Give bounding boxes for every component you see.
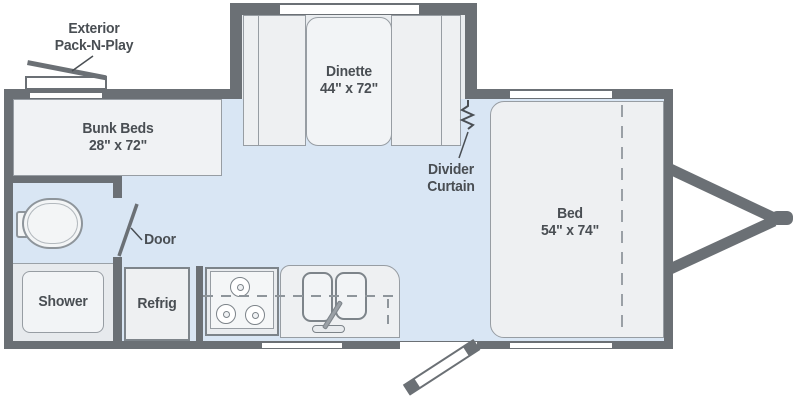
label-shower-text: Shower xyxy=(38,293,87,310)
label-bunk-beds: Bunk Beds 28" x 72" xyxy=(82,120,153,154)
label-divider-curtain-line1: Divider xyxy=(427,161,475,178)
packnplay-pointer xyxy=(72,56,93,71)
label-dinette-name: Dinette xyxy=(320,63,378,80)
label-divider-curtain: Divider Curtain xyxy=(427,161,475,195)
label-bed-name: Bed xyxy=(541,205,599,222)
hitch-coupler xyxy=(771,211,793,225)
label-refrig-text: Refrig xyxy=(137,295,176,312)
entry-door-leaf xyxy=(403,340,479,395)
label-refrig: Refrig xyxy=(137,295,176,312)
label-dinette: Dinette 44" x 72" xyxy=(320,63,378,97)
label-bed: Bed 54" x 74" xyxy=(541,205,599,239)
door-label-pointer xyxy=(131,228,142,240)
hitch-a-frame xyxy=(668,168,793,270)
label-dinette-dims: 44" x 72" xyxy=(320,80,378,97)
floorplan: Exterior Pack-N-Play Bunk Beds 28" x 72"… xyxy=(0,0,800,400)
label-bed-dims: 54" x 74" xyxy=(541,222,599,239)
label-divider-curtain-line2: Curtain xyxy=(427,178,475,195)
label-bunk-beds-name: Bunk Beds xyxy=(82,120,153,137)
divider-curtain-pointer xyxy=(459,132,468,158)
label-door: Door xyxy=(144,231,176,248)
label-exterior-packnplay-line1: Exterior xyxy=(55,20,134,37)
overlay-shapes xyxy=(0,0,800,400)
label-exterior-packnplay: Exterior Pack-N-Play xyxy=(55,20,134,54)
label-door-text: Door xyxy=(144,231,176,248)
bathroom-door-leaf xyxy=(119,204,137,256)
label-exterior-packnplay-line2: Pack-N-Play xyxy=(55,37,134,54)
divider-curtain-symbol xyxy=(462,100,473,129)
label-shower: Shower xyxy=(38,293,87,310)
label-bunk-beds-dims: 28" x 72" xyxy=(82,137,153,154)
